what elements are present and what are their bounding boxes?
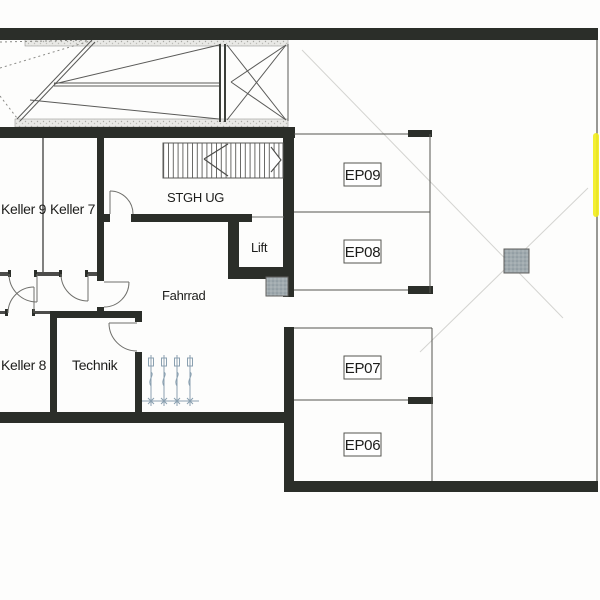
highlighter-mark-icon [593, 133, 599, 217]
wall-technik-right-lower [135, 352, 142, 413]
scanned-floor-plan-page: EP09 EP08 EP07 EP06 Keller 9 Keller 7 ST… [0, 0, 600, 600]
room-label-keller7: Keller 7 [50, 201, 96, 217]
parking-space-label: EP09 [345, 167, 381, 184]
wall-technik-left [50, 311, 57, 413]
room-label-stairwell: STGH UG [167, 190, 224, 205]
structural-column-icon [266, 277, 288, 296]
wall-garage-left-lower [284, 327, 294, 487]
door-jamb [104, 214, 110, 222]
room-label-technik: Technik [72, 357, 119, 373]
wall-stairwell-left [97, 138, 104, 281]
structural-column-icon [504, 249, 529, 273]
wall-lift-top-stub [228, 214, 252, 222]
ramp-hatching-icon [15, 119, 288, 127]
parking-space-label: EP08 [345, 244, 381, 261]
paper-background [0, 0, 600, 600]
parking-wall-stub [408, 397, 433, 404]
wall-technik-top [50, 311, 142, 318]
floor-plan-canvas: EP09 EP08 EP07 EP06 Keller 9 Keller 7 ST… [0, 0, 600, 600]
parking-space-label: EP06 [345, 437, 381, 454]
wall-technik-right-upper [135, 311, 142, 322]
room-label-keller9: Keller 9 [1, 201, 47, 217]
wall-left-section-bottom [0, 412, 294, 423]
room-label-fahrrad: Fahrrad [162, 288, 205, 303]
room-label-keller8: Keller 8 [1, 357, 47, 373]
wall-left-section-top [0, 127, 295, 138]
parking-wall-stub [408, 286, 433, 294]
wall-corridor-top [131, 214, 237, 222]
stair-run-icon [163, 143, 283, 178]
wall-garage-bottom [284, 481, 598, 492]
room-label-lift: Lift [251, 240, 268, 255]
wall-top [0, 28, 598, 40]
parking-space-label: EP07 [345, 360, 381, 377]
parking-wall-stub [408, 130, 432, 137]
